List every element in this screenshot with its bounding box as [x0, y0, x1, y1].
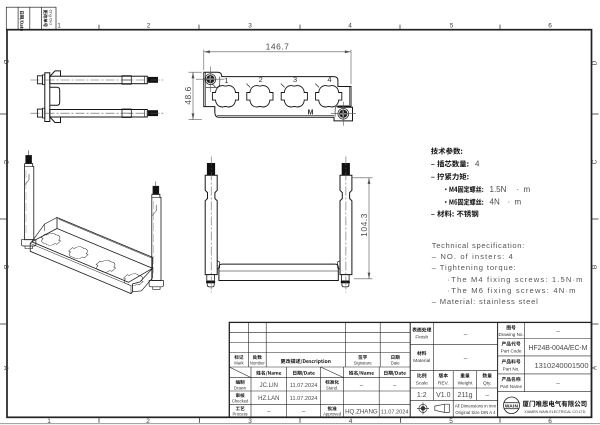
- svg-text:–: –: [464, 356, 468, 363]
- svg-text:–: –: [302, 409, 306, 415]
- svg-text:3: 3: [293, 75, 297, 84]
- svg-text:3: 3: [248, 418, 252, 425]
- svg-text:D: D: [2, 60, 9, 65]
- svg-text:Mark: Mark: [234, 360, 244, 365]
- svg-text:2: 2: [259, 75, 263, 84]
- svg-text:Date: Date: [391, 360, 401, 365]
- svg-text:C: C: [2, 160, 9, 165]
- svg-text:Original Size DIN A 4: Original Size DIN A 4: [455, 410, 496, 415]
- svg-text:–: –: [556, 328, 560, 335]
- svg-text:XIAMEN WAIN ELECTRICAL CO.LTD: XIAMEN WAIN ELECTRICAL CO.LTD: [524, 409, 585, 414]
- svg-text:–: –: [485, 392, 489, 399]
- svg-text:5: 5: [449, 418, 453, 425]
- svg-text:4N: 4N: [490, 198, 500, 207]
- svg-text:B: B: [2, 265, 9, 269]
- svg-text:– NO. of insters: 4: – NO. of insters: 4: [432, 252, 513, 261]
- svg-text:m: m: [515, 198, 522, 207]
- svg-text:4: 4: [327, 75, 331, 84]
- svg-text:Approved: Approved: [323, 412, 342, 417]
- svg-text:·: ·: [517, 185, 520, 194]
- svg-text:– Tightening torque:: – Tightening torque:: [432, 263, 516, 272]
- svg-text:m: m: [524, 185, 531, 194]
- svg-text:Qty.: Qty.: [483, 380, 491, 386]
- svg-text:HF24B-004A/EC-M: HF24B-004A/EC-M: [529, 345, 588, 352]
- svg-text:Finish: Finish: [415, 335, 428, 341]
- svg-text:Chg Ord: Chg Ord: [48, 10, 53, 25]
- svg-text:1:2: 1:2: [417, 392, 427, 399]
- svg-text:6: 6: [548, 22, 552, 29]
- svg-text:11.07.2024: 11.07.2024: [381, 409, 409, 415]
- svg-text:–: –: [393, 383, 397, 389]
- svg-text:Stand.: Stand.: [326, 385, 338, 390]
- svg-text:1.5N: 1.5N: [490, 185, 507, 194]
- svg-text:REV.: REV.: [438, 380, 449, 386]
- svg-text:A: A: [591, 365, 598, 370]
- svg-text:A: A: [2, 366, 9, 371]
- svg-text:1310240001500: 1310240001500: [535, 361, 589, 370]
- svg-text:1: 1: [47, 418, 51, 425]
- svg-text:–: –: [360, 383, 364, 389]
- svg-text:104.3: 104.3: [359, 213, 369, 237]
- svg-text:5: 5: [450, 22, 454, 29]
- svg-text:Part Code: Part Code: [501, 349, 522, 354]
- svg-text:·The M4 fixing screws: 1.5N·m: ·The M4 fixing screws: 1.5N·m: [448, 275, 583, 284]
- svg-text:B: B: [591, 265, 598, 269]
- svg-text:– Material: stainless steel: – Material: stainless steel: [432, 297, 538, 306]
- svg-text:Checked: Checked: [232, 399, 249, 404]
- svg-text:–: –: [267, 409, 271, 415]
- svg-text:Scale: Scale: [416, 380, 428, 386]
- svg-text:–: –: [556, 380, 560, 387]
- svg-text:Number: Number: [250, 360, 265, 365]
- svg-text:Drawing No.: Drawing No.: [498, 332, 523, 337]
- svg-text:4: 4: [475, 160, 480, 169]
- svg-text:All Dimensions in mm: All Dimensions in mm: [455, 404, 497, 409]
- svg-text:48.6: 48.6: [183, 86, 193, 105]
- svg-text:JC.LIN: JC.LIN: [260, 383, 278, 389]
- svg-text:C: C: [591, 159, 598, 164]
- svg-text:4: 4: [348, 22, 352, 29]
- svg-text:211g: 211g: [457, 392, 472, 399]
- svg-text:Part Name: Part Name: [500, 384, 522, 389]
- svg-text:1: 1: [57, 22, 61, 29]
- svg-text:2: 2: [146, 418, 150, 425]
- svg-text:·The M6 fixing screws: 4N·m: ·The M6 fixing screws: 4N·m: [448, 286, 576, 295]
- svg-text:Process: Process: [233, 412, 248, 417]
- svg-text:Part No.: Part No.: [503, 366, 520, 371]
- svg-text:–: –: [464, 332, 468, 339]
- svg-text:Signature: Signature: [354, 360, 373, 365]
- svg-text:·: ·: [508, 198, 511, 207]
- svg-text:6: 6: [548, 418, 552, 425]
- svg-text:V1.0: V1.0: [436, 392, 451, 399]
- svg-text:11.07.2024: 11.07.2024: [290, 396, 318, 402]
- svg-text:Weight: Weight: [458, 380, 474, 386]
- svg-text:Drawn: Drawn: [234, 385, 247, 390]
- svg-text:HQ.ZHANG: HQ.ZHANG: [345, 408, 378, 415]
- svg-text:Technical specification:: Technical specification:: [432, 241, 525, 250]
- svg-text:2: 2: [147, 22, 151, 29]
- svg-text:146.7: 146.7: [266, 41, 290, 51]
- svg-text:11.07.2024: 11.07.2024: [290, 383, 318, 389]
- svg-text:Material: Material: [413, 358, 430, 364]
- svg-text:M: M: [308, 110, 314, 117]
- svg-text:D: D: [591, 60, 598, 65]
- svg-text:4: 4: [349, 418, 353, 425]
- svg-text:HZ.LAN: HZ.LAN: [258, 396, 279, 402]
- svg-text:WAIN: WAIN: [505, 404, 519, 410]
- svg-text:3: 3: [248, 22, 252, 29]
- svg-text:1: 1: [224, 76, 228, 85]
